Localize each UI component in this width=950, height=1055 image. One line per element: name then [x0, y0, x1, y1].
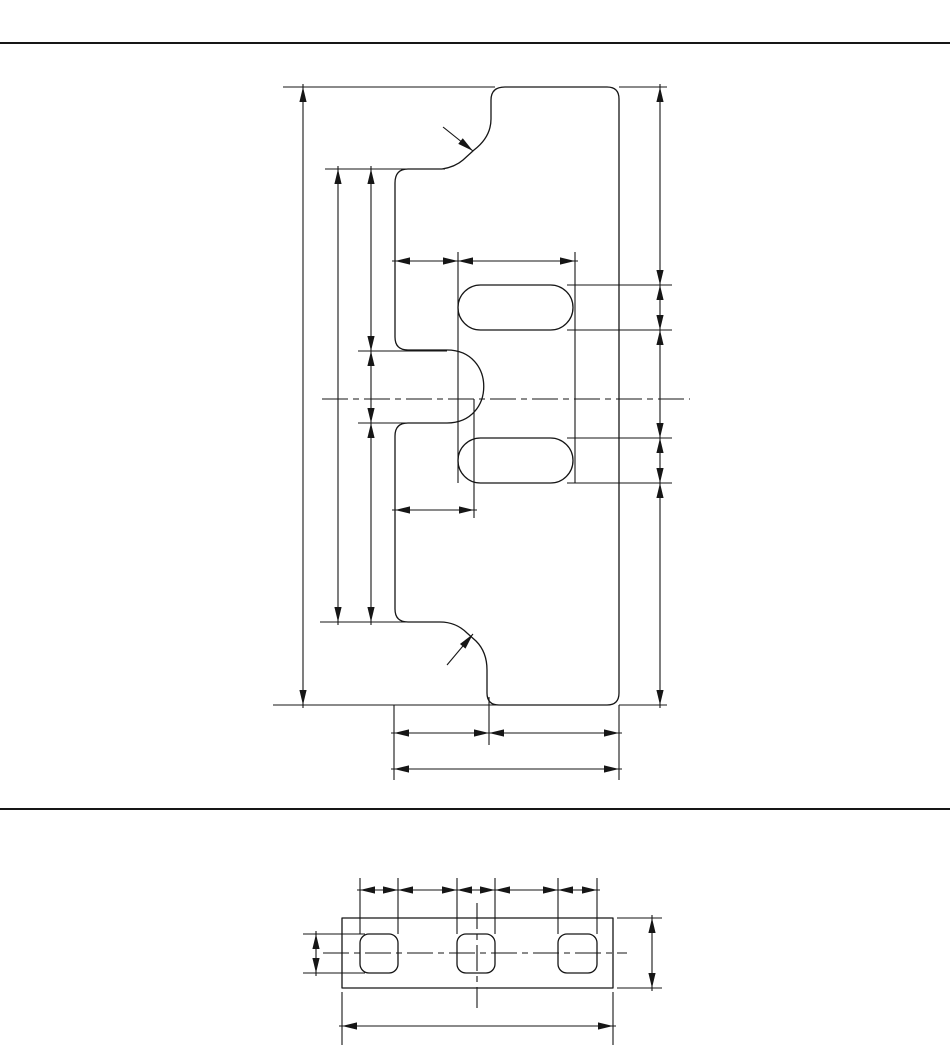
dimension-arrowhead	[656, 270, 663, 285]
dimension-arrowhead	[312, 958, 319, 973]
dimension-arrowhead	[656, 285, 663, 300]
dimension-arrowhead	[604, 765, 619, 772]
dimension-arrowhead	[648, 973, 655, 988]
dimension-arrowhead	[560, 257, 575, 264]
profile-view-slot	[458, 285, 573, 330]
profile-view	[273, 84, 690, 780]
dimension-arrowhead	[656, 423, 663, 438]
dimension-arrowhead	[604, 729, 619, 736]
dimension-arrowhead	[474, 729, 489, 736]
dimension-arrowhead	[558, 886, 573, 893]
dimension-arrowhead	[598, 1022, 613, 1029]
dimension-arrowhead	[367, 408, 374, 423]
dimension-arrowhead	[334, 607, 341, 622]
dimension-arrowhead	[395, 506, 410, 513]
dimension-arrowhead	[312, 934, 319, 949]
dimension-arrowhead	[367, 423, 374, 438]
dimension-arrowhead	[656, 468, 663, 483]
dimension-arrowhead	[342, 1022, 357, 1029]
drawing-svg	[0, 0, 950, 1055]
dimension-arrowhead	[656, 87, 663, 102]
dimension-arrowhead	[489, 729, 504, 736]
dimension-arrowhead	[383, 886, 398, 893]
dimension-arrowhead	[394, 729, 409, 736]
dimension-arrowhead	[299, 87, 306, 102]
dimension-arrowhead	[299, 690, 306, 705]
leader-arrowhead	[458, 138, 473, 151]
dimension-arrowhead	[367, 607, 374, 622]
dimension-arrowhead	[360, 886, 375, 893]
dimension-arrowhead	[656, 330, 663, 345]
dimension-arrowhead	[398, 886, 413, 893]
dimension-arrowhead	[656, 438, 663, 453]
dimension-arrowhead	[656, 315, 663, 330]
dimension-arrowhead	[442, 886, 457, 893]
technical-drawing-page	[0, 0, 950, 1055]
dimension-arrowhead	[656, 690, 663, 705]
dimension-arrowhead	[394, 765, 409, 772]
dimension-arrowhead	[367, 351, 374, 366]
plan-view	[303, 878, 662, 1045]
dimension-arrowhead	[443, 257, 458, 264]
dimension-arrowhead	[495, 886, 510, 893]
dimension-arrowhead	[457, 886, 472, 893]
dimension-arrowhead	[648, 918, 655, 933]
dimension-arrowhead	[459, 506, 474, 513]
dimension-arrowhead	[395, 257, 410, 264]
dimension-arrowhead	[334, 169, 341, 184]
dimension-arrowhead	[656, 483, 663, 498]
dimension-arrowhead	[543, 886, 558, 893]
dimension-arrowhead	[480, 886, 495, 893]
dimension-arrowhead	[367, 169, 374, 184]
dimension-arrowhead	[582, 886, 597, 893]
dimension-arrowhead	[458, 257, 473, 264]
profile-view-outline	[395, 87, 619, 705]
dimension-arrowhead	[367, 336, 374, 351]
profile-view-slot	[458, 438, 573, 483]
